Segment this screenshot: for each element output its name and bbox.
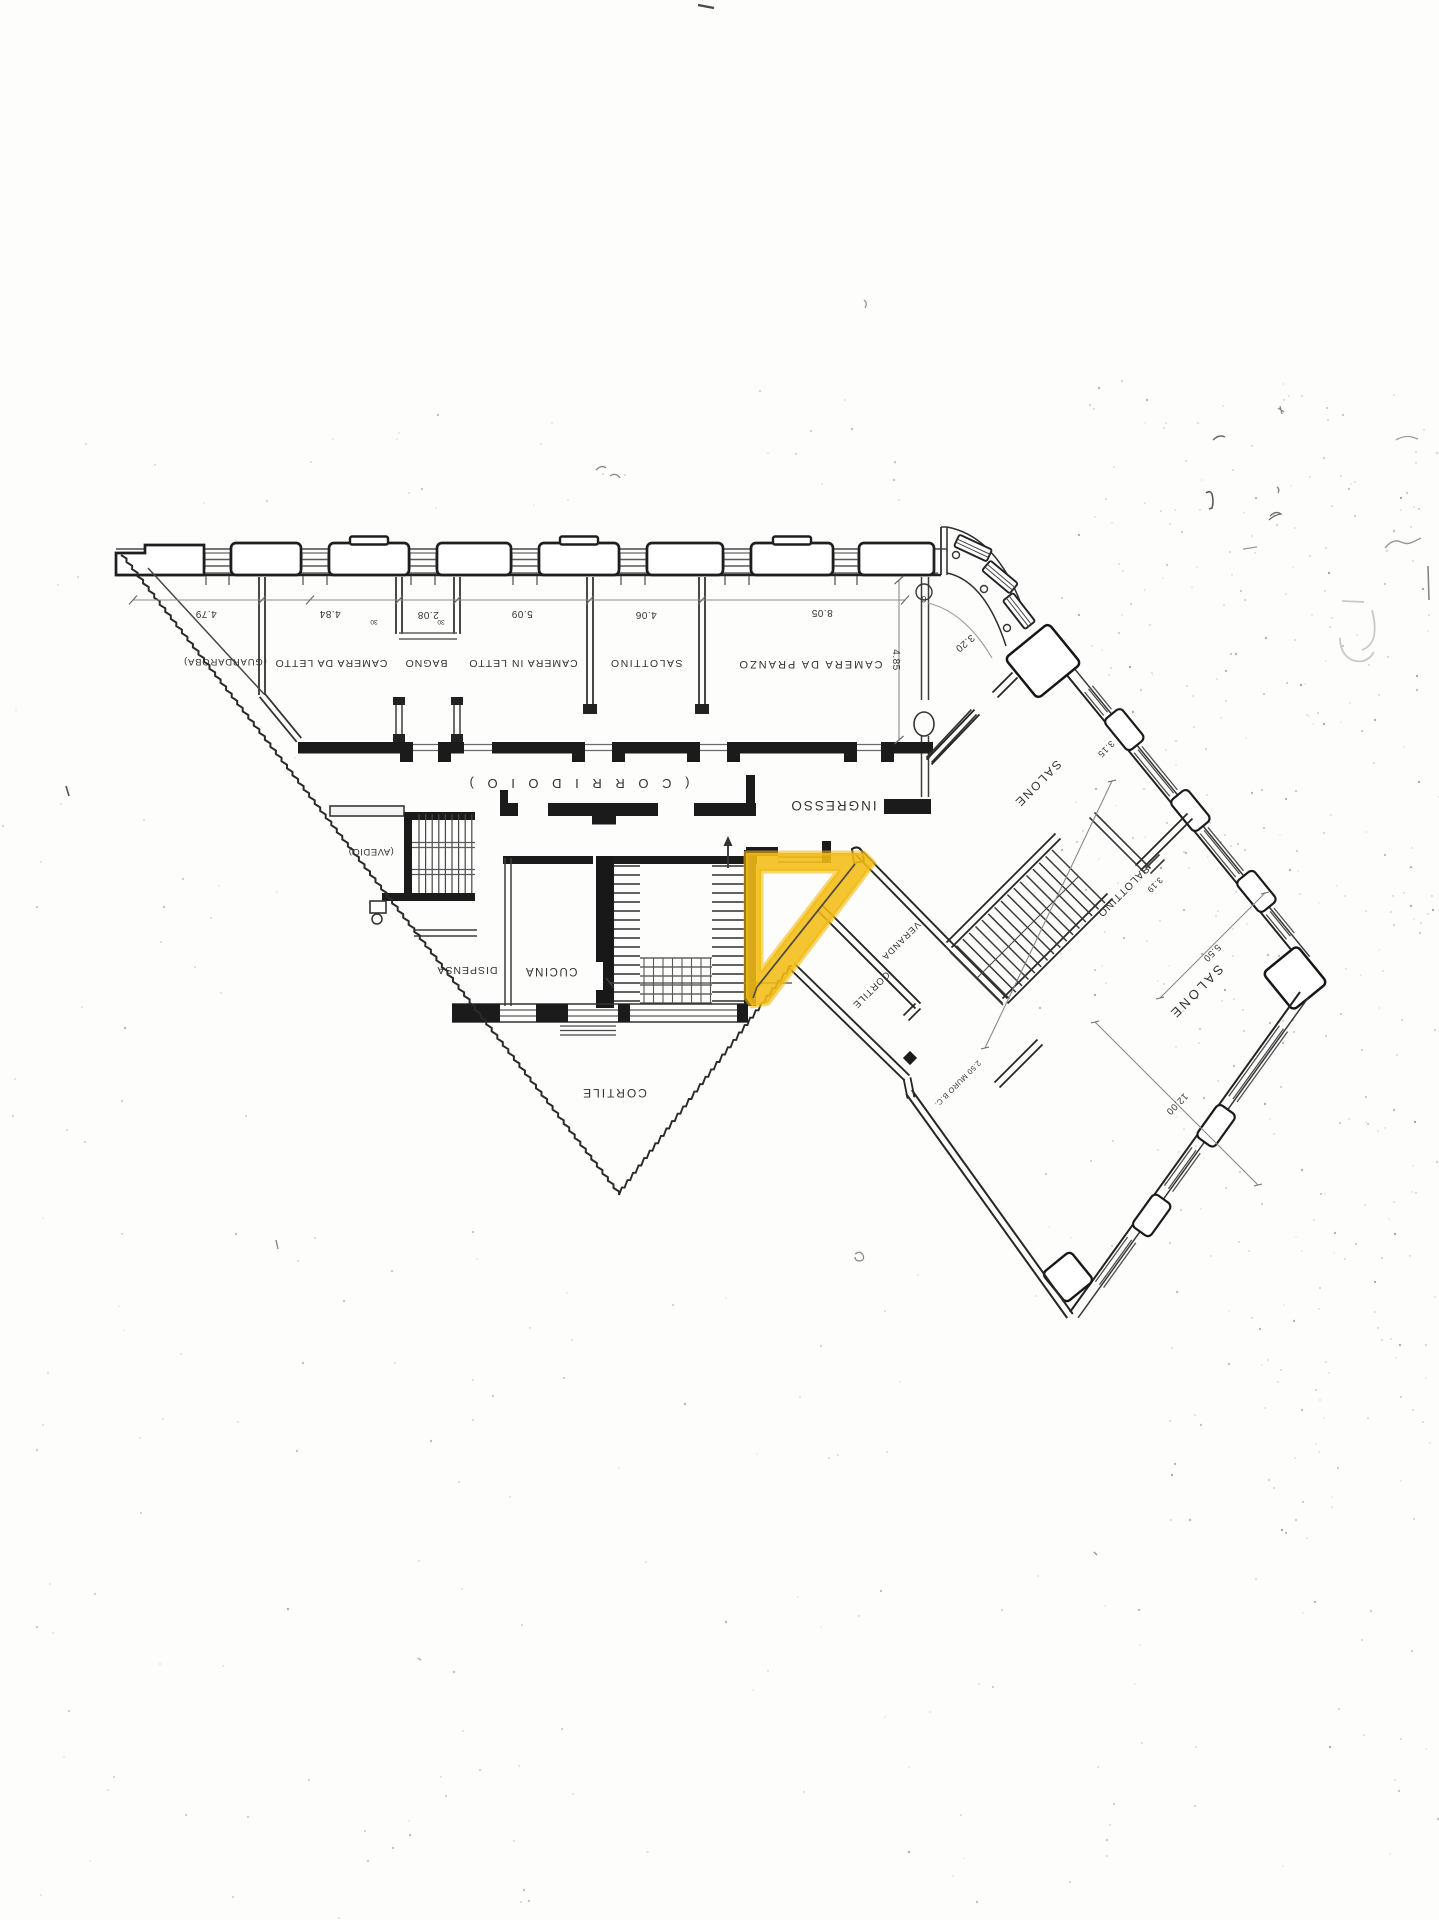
svg-text:6: 6 bbox=[921, 594, 926, 604]
svg-text:CUCINA: CUCINA bbox=[524, 965, 577, 977]
svg-text:8.05: 8.05 bbox=[811, 607, 832, 618]
svg-text:SALOTTINO: SALOTTINO bbox=[609, 657, 682, 669]
svg-text:4.84: 4.84 bbox=[319, 608, 340, 619]
svg-text:5.09: 5.09 bbox=[511, 608, 532, 619]
svg-text:(AVEDIO): (AVEDIO) bbox=[348, 846, 394, 857]
svg-text:30: 30 bbox=[437, 618, 445, 625]
svg-text:(GUARDAROBA): (GUARDAROBA) bbox=[183, 656, 267, 667]
svg-text:CAMERA DA LETTO: CAMERA DA LETTO bbox=[275, 657, 388, 669]
svg-text:INGRESSO: INGRESSO bbox=[789, 798, 876, 813]
svg-text:CAMERA IN LETTO: CAMERA IN LETTO bbox=[468, 657, 577, 669]
svg-text:30: 30 bbox=[370, 618, 378, 625]
svg-text:CAMERA DA PRANZO: CAMERA DA PRANZO bbox=[737, 658, 882, 670]
svg-text:( C O R R I D O I O ): ( C O R R I D O I O ) bbox=[465, 776, 690, 791]
svg-text:DISPENSA: DISPENSA bbox=[436, 964, 497, 976]
svg-text:4.79: 4.79 bbox=[195, 608, 216, 619]
svg-text:4.06: 4.06 bbox=[635, 609, 656, 620]
svg-text:BAGNO: BAGNO bbox=[405, 657, 448, 669]
svg-text:CORTILE: CORTILE bbox=[581, 1086, 647, 1100]
svg-text:4.85: 4.85 bbox=[890, 649, 901, 670]
svg-text:2.08: 2.08 bbox=[417, 609, 438, 620]
